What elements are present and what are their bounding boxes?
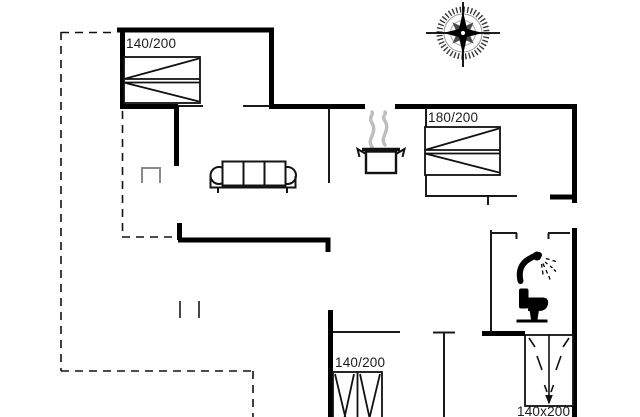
floor-plan: 140/200 180/200 140/200 140x200 [0, 0, 640, 417]
floor-plan-canvas [0, 0, 640, 417]
double-bed-icon-right [425, 127, 500, 175]
cooking-pot-icon [358, 149, 405, 173]
bed-size-label-right: 180/200 [428, 110, 478, 125]
side-table-icon [142, 168, 160, 183]
bed-size-label-top-left: 140/200 [126, 36, 176, 51]
bed-icon-bottom-right [525, 335, 573, 406]
bed-icon-bottom-left [333, 372, 382, 417]
bed-size-label-bottom-left: 140/200 [335, 355, 385, 370]
compass-rose-icon [426, 2, 500, 67]
door-tick-marks [180, 301, 199, 318]
toilet-icon [517, 289, 549, 323]
shower-icon [520, 252, 556, 282]
bed-size-label-bottom-right: 140x200 [517, 404, 570, 417]
sofa-icon [211, 162, 297, 194]
steam-icon [370, 112, 386, 147]
double-bed-icon-top-left [124, 57, 200, 103]
